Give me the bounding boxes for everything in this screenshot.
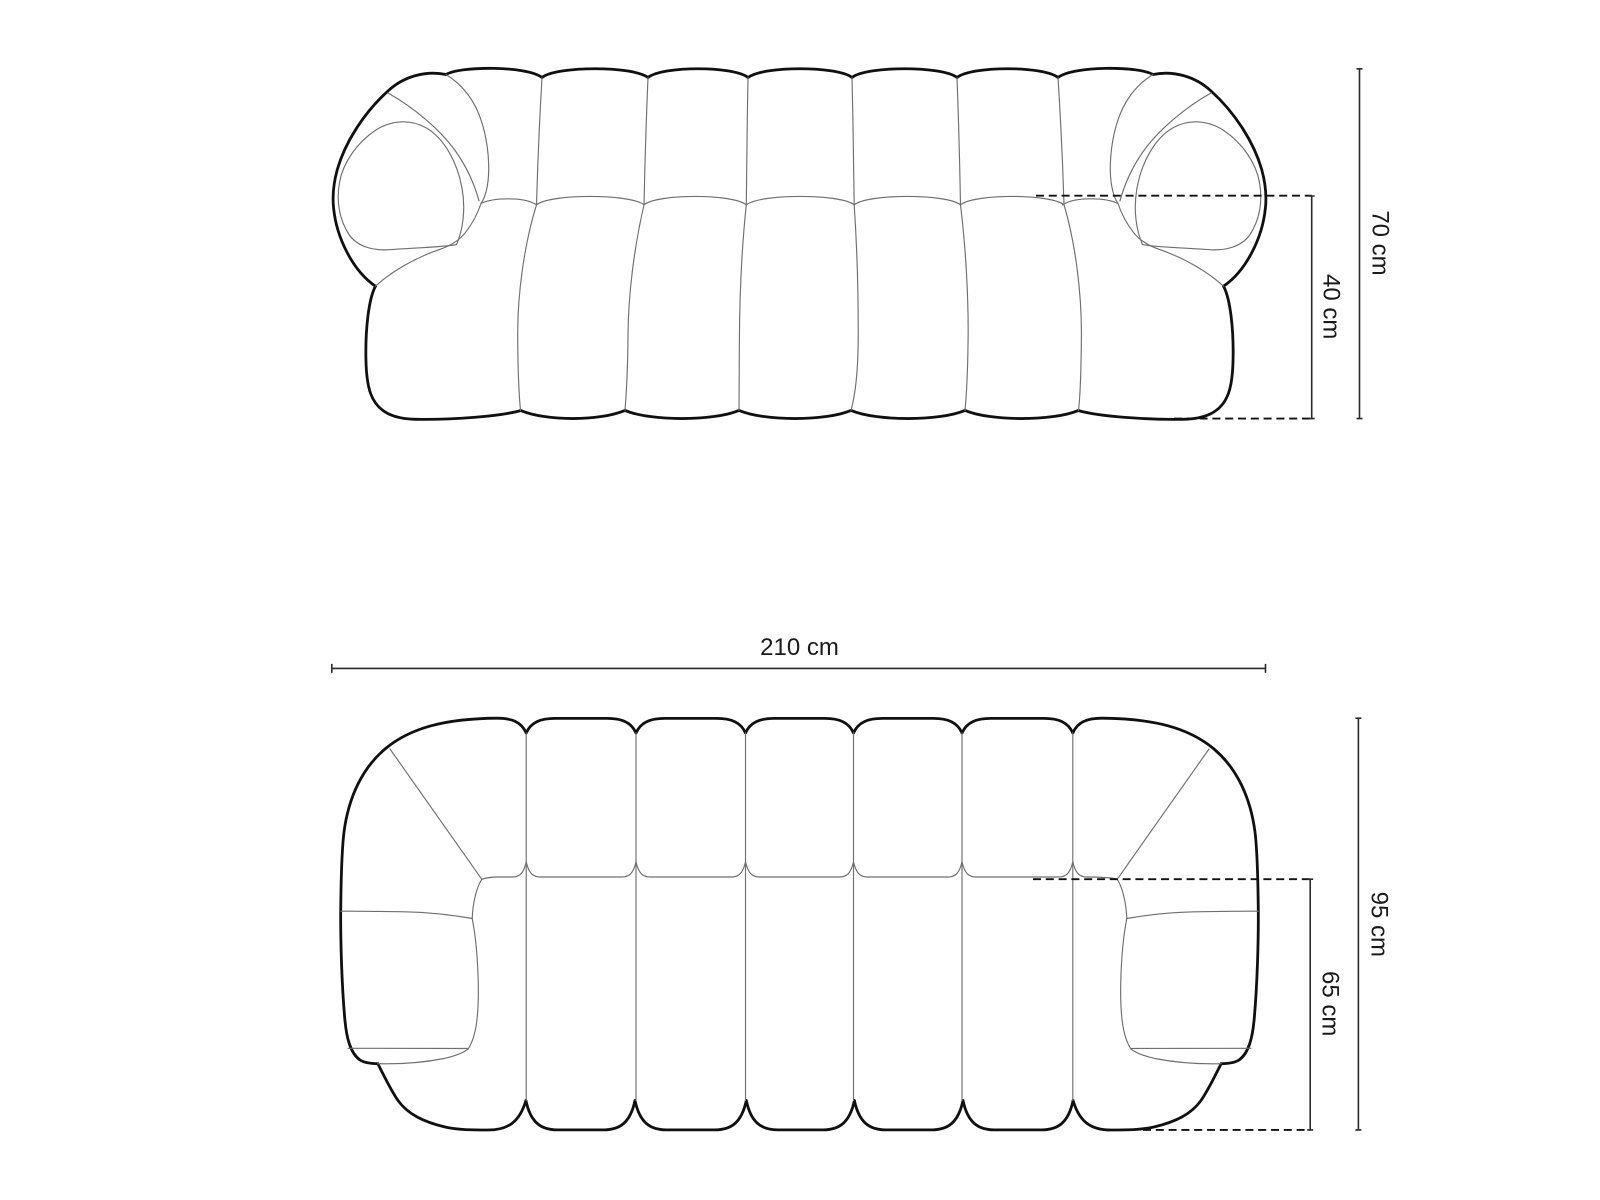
svg-text:40 cm: 40 cm bbox=[1318, 274, 1345, 339]
svg-text:210 cm: 210 cm bbox=[760, 634, 839, 661]
svg-text:95 cm: 95 cm bbox=[1366, 892, 1393, 957]
svg-text:70 cm: 70 cm bbox=[1367, 210, 1394, 275]
svg-text:65 cm: 65 cm bbox=[1317, 971, 1344, 1036]
